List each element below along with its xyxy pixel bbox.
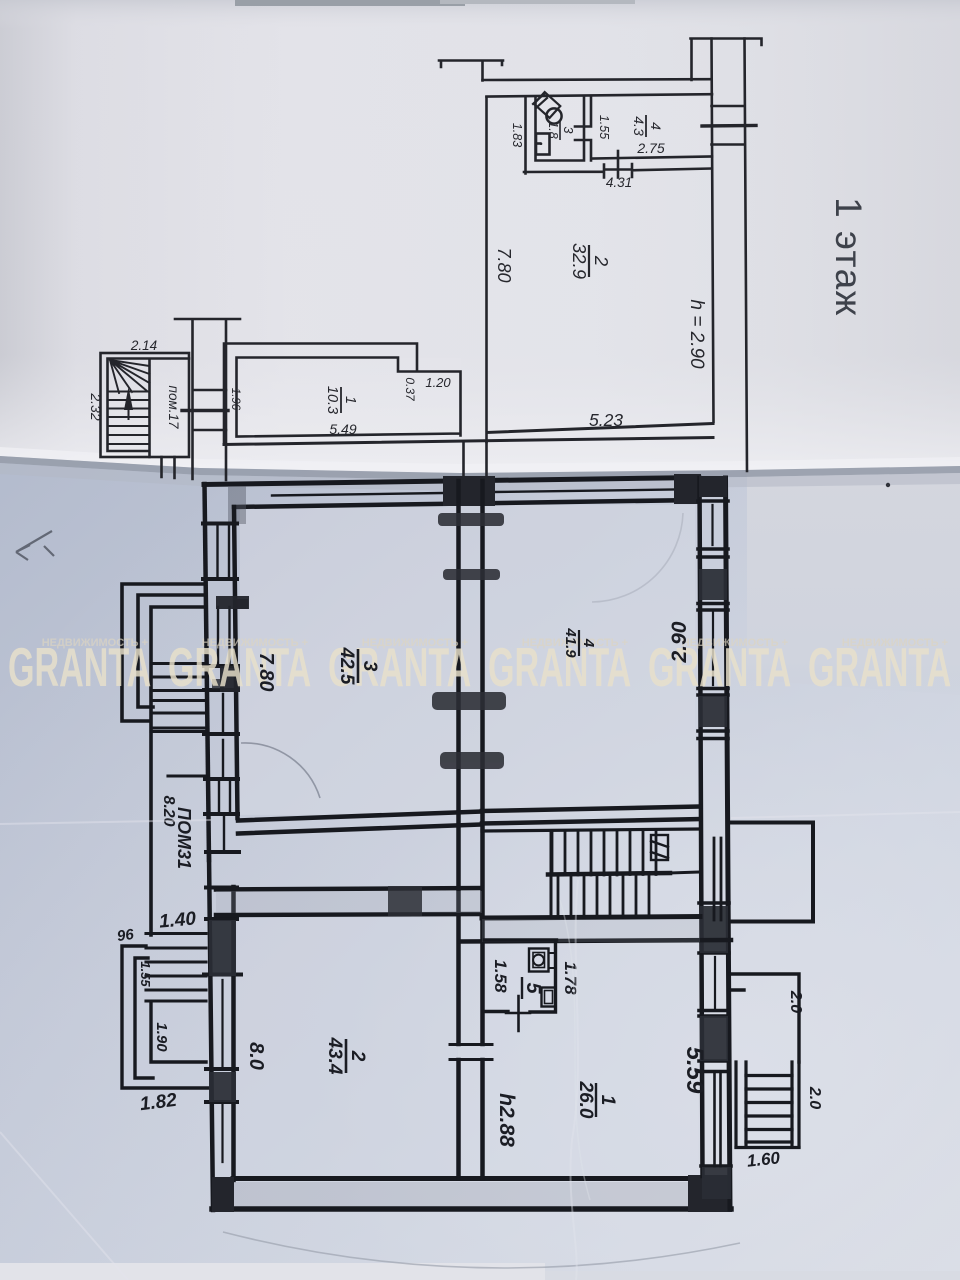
- svg-text:32.9: 32.9: [569, 243, 590, 279]
- svg-text:НЕДВИЖИМОСТЬ +: НЕДВИЖИМОСТЬ +: [202, 637, 308, 649]
- svg-text:1: 1: [342, 396, 358, 404]
- svg-text:1.96: 1.96: [229, 388, 241, 411]
- svg-text:1.60: 1.60: [746, 1148, 781, 1170]
- svg-text:7.80: 7.80: [494, 247, 514, 282]
- svg-text:5: 5: [522, 982, 544, 994]
- svg-text:НЕДВИЖИМОСТЬ +: НЕДВИЖИМОСТЬ +: [842, 637, 948, 649]
- svg-text:5.23: 5.23: [589, 410, 623, 430]
- svg-text:2.32: 2.32: [88, 392, 104, 420]
- svg-text:1.58: 1.58: [491, 959, 510, 993]
- svg-text:h = 2.90: h = 2.90: [686, 299, 707, 369]
- svg-text:1.83: 1.83: [510, 123, 524, 147]
- svg-text:8.20: 8.20: [160, 795, 177, 826]
- svg-text:2: 2: [591, 255, 612, 267]
- svg-text:1: 1: [597, 1095, 618, 1106]
- svg-text:42.5: 42.5: [336, 647, 357, 685]
- svg-text:4: 4: [580, 638, 597, 648]
- svg-text:0.37: 0.37: [403, 377, 417, 402]
- svg-text:1.55: 1.55: [597, 115, 611, 139]
- svg-text:2.0: 2.0: [787, 990, 804, 1013]
- svg-text:2.0: 2.0: [806, 1086, 823, 1109]
- svg-text:пом.17: пом.17: [166, 386, 181, 429]
- svg-text:7.80: 7.80: [255, 653, 277, 692]
- svg-text:4.31: 4.31: [606, 175, 632, 190]
- svg-text:5.59: 5.59: [681, 1047, 708, 1094]
- svg-text:h2.88: h2.88: [495, 1093, 518, 1147]
- svg-text:1.55: 1.55: [138, 961, 153, 987]
- svg-text:1.8: 1.8: [546, 121, 560, 138]
- svg-text:3: 3: [561, 127, 575, 134]
- svg-text:5.49: 5.49: [329, 421, 356, 437]
- svg-text:2.75: 2.75: [636, 140, 664, 156]
- svg-text:96: 96: [116, 926, 136, 945]
- svg-text:НЕДВИЖИМОСТЬ +: НЕДВИЖИМОСТЬ +: [42, 637, 148, 649]
- svg-text:2.90: 2.90: [668, 621, 691, 663]
- svg-text:1.20: 1.20: [425, 375, 451, 390]
- svg-text:10.3: 10.3: [324, 386, 340, 414]
- svg-text:3: 3: [359, 661, 380, 672]
- svg-text:41.9: 41.9: [562, 627, 579, 658]
- svg-text:1.40: 1.40: [158, 908, 197, 932]
- svg-text:1.90: 1.90: [153, 1022, 170, 1052]
- svg-text:4.3: 4.3: [631, 116, 647, 136]
- svg-text:4: 4: [648, 122, 664, 130]
- svg-text:НЕДВИЖИМОСТЬ +: НЕДВИЖИМОСТЬ +: [362, 637, 468, 649]
- svg-text:2.14: 2.14: [130, 338, 157, 353]
- svg-text:1 этаж: 1 этаж: [828, 197, 869, 317]
- svg-text:43.4: 43.4: [324, 1037, 345, 1075]
- svg-text:2: 2: [347, 1050, 368, 1062]
- svg-text:НЕДВИЖИМОСТЬ +: НЕДВИЖИМОСТЬ +: [682, 637, 788, 649]
- svg-text:8.0: 8.0: [245, 1042, 267, 1070]
